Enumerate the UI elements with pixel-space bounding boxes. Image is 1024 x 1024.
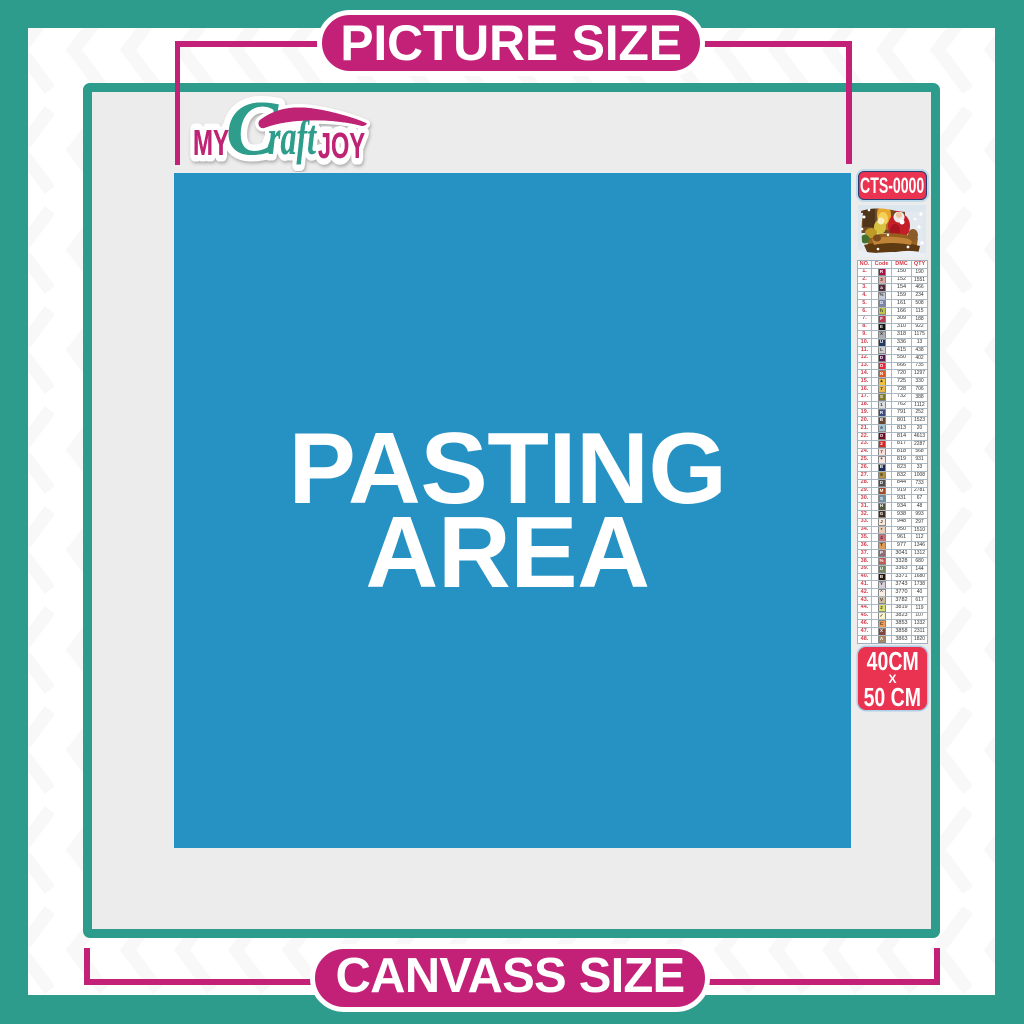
svg-text:MY: MY	[193, 122, 229, 163]
svg-text:JOY: JOY	[318, 125, 365, 166]
